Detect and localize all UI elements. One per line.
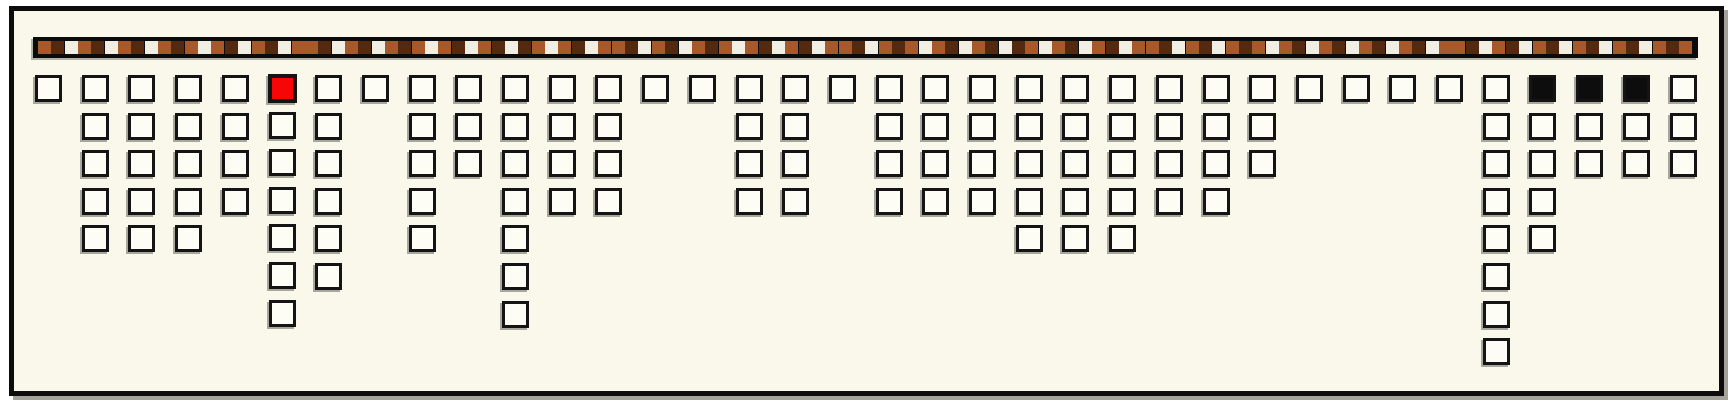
board-cell[interactable]	[502, 188, 529, 215]
board-column-17	[782, 75, 812, 225]
board-cell[interactable]	[1576, 150, 1603, 177]
board-cell[interactable]	[1062, 188, 1089, 215]
board-cell[interactable]	[922, 113, 949, 140]
board-cell[interactable]	[1016, 113, 1043, 140]
board-cell[interactable]	[1203, 113, 1230, 140]
board-cell[interactable]	[736, 113, 763, 140]
board-cell[interactable]	[175, 188, 202, 215]
board-column-20	[922, 75, 952, 225]
board-cell-black[interactable]	[1576, 75, 1603, 102]
board-cell[interactable]	[969, 75, 996, 102]
board-cell[interactable]	[1203, 75, 1230, 102]
board-column-27	[1249, 75, 1279, 188]
board-cell[interactable]	[1016, 75, 1043, 102]
board-cell[interactable]	[829, 75, 856, 102]
board-column-9	[409, 75, 439, 263]
board-cell[interactable]	[455, 113, 482, 140]
board-cell[interactable]	[315, 188, 342, 215]
board-cell[interactable]	[82, 75, 109, 102]
board-cell-red[interactable]	[268, 74, 297, 103]
board-cell[interactable]	[1670, 113, 1697, 140]
board-cell[interactable]	[736, 188, 763, 215]
board-cell[interactable]	[1156, 113, 1183, 140]
board-cell[interactable]	[922, 150, 949, 177]
board-cell[interactable]	[1623, 113, 1650, 140]
board-cell[interactable]	[1156, 150, 1183, 177]
board-cell[interactable]	[595, 113, 622, 140]
board-column-34	[1576, 75, 1606, 188]
board-cell[interactable]	[175, 150, 202, 177]
board-cell[interactable]	[1483, 225, 1510, 252]
board-cell[interactable]	[269, 224, 296, 251]
board-cell[interactable]	[175, 113, 202, 140]
board-cell[interactable]	[969, 113, 996, 140]
board-column-12	[549, 75, 579, 225]
board-cell[interactable]	[922, 188, 949, 215]
board-cell[interactable]	[82, 225, 109, 252]
board-cell[interactable]	[1109, 150, 1136, 177]
board-cell[interactable]	[549, 113, 576, 140]
board-cell[interactable]	[82, 188, 109, 215]
board-cell[interactable]	[876, 113, 903, 140]
board-cell[interactable]	[222, 75, 249, 102]
board-cell[interactable]	[128, 150, 155, 177]
board-cell[interactable]	[1483, 263, 1510, 290]
board-cell[interactable]	[269, 262, 296, 289]
board-cell[interactable]	[269, 112, 296, 139]
board-column-2	[82, 75, 112, 263]
board-cell[interactable]	[1156, 75, 1183, 102]
board-cell[interactable]	[502, 301, 529, 328]
board-cell[interactable]	[969, 150, 996, 177]
board-cell[interactable]	[1062, 75, 1089, 102]
board-column-19	[876, 75, 906, 225]
board-cell[interactable]	[1249, 75, 1276, 102]
board-cell[interactable]	[1343, 75, 1370, 102]
board-column-32	[1483, 75, 1513, 376]
board-cell[interactable]	[1249, 150, 1276, 177]
board-cell[interactable]	[1483, 338, 1510, 365]
board-cell[interactable]	[969, 188, 996, 215]
board-cell[interactable]	[1109, 188, 1136, 215]
board-cell[interactable]	[876, 75, 903, 102]
board-cell[interactable]	[782, 75, 809, 102]
board-column-28	[1296, 75, 1326, 113]
square-column-board	[0, 0, 1733, 408]
board-cell[interactable]	[502, 263, 529, 290]
board-cell[interactable]	[409, 225, 436, 252]
board-column-22	[1016, 75, 1046, 263]
board-cell[interactable]	[1483, 188, 1510, 215]
board-cell-black[interactable]	[1623, 75, 1650, 102]
board-cell[interactable]	[1483, 113, 1510, 140]
board-cell[interactable]	[1576, 113, 1603, 140]
board-cell[interactable]	[82, 113, 109, 140]
board-cell[interactable]	[128, 113, 155, 140]
board-cell[interactable]	[128, 188, 155, 215]
board-cell[interactable]	[502, 113, 529, 140]
board-cell[interactable]	[82, 150, 109, 177]
board-cell[interactable]	[362, 75, 389, 102]
board-cell[interactable]	[315, 225, 342, 252]
board-cell[interactable]	[409, 188, 436, 215]
board-cell[interactable]	[175, 225, 202, 252]
board-column-35	[1623, 75, 1653, 188]
board-cell[interactable]	[595, 188, 622, 215]
board-cell[interactable]	[409, 150, 436, 177]
board-cell[interactable]	[1670, 75, 1697, 102]
board-cell[interactable]	[455, 150, 482, 177]
board-column-8	[362, 75, 392, 113]
board-cell[interactable]	[222, 113, 249, 140]
board-cell[interactable]	[1016, 150, 1043, 177]
board-cell[interactable]	[782, 188, 809, 215]
board-cell[interactable]	[922, 75, 949, 102]
board-cell-black[interactable]	[1529, 75, 1556, 102]
board-column-11	[502, 75, 532, 338]
board-cell[interactable]	[1529, 150, 1556, 177]
panel	[0, 0, 1733, 408]
board-cell[interactable]	[175, 75, 202, 102]
board-column-21	[969, 75, 999, 225]
board-column-25	[1156, 75, 1186, 225]
board-column-31	[1436, 75, 1466, 113]
board-cell[interactable]	[1109, 75, 1136, 102]
board-cell[interactable]	[1389, 75, 1416, 102]
board-cell[interactable]	[595, 150, 622, 177]
board-column-15	[689, 75, 719, 113]
board-cell[interactable]	[549, 150, 576, 177]
board-cell[interactable]	[35, 75, 62, 102]
board-cell[interactable]	[782, 113, 809, 140]
board-cell[interactable]	[736, 150, 763, 177]
board-cell[interactable]	[409, 113, 436, 140]
board-cell[interactable]	[315, 113, 342, 140]
board-cell[interactable]	[642, 75, 669, 102]
board-cell[interactable]	[1529, 188, 1556, 215]
board-cell[interactable]	[315, 75, 342, 102]
board-cell[interactable]	[455, 75, 482, 102]
board-cell[interactable]	[1436, 75, 1463, 102]
board-cell[interactable]	[1203, 188, 1230, 215]
board-cell[interactable]	[502, 150, 529, 177]
board-column-30	[1389, 75, 1419, 113]
board-cell[interactable]	[1529, 225, 1556, 252]
board-column-10	[455, 75, 485, 188]
board-cell[interactable]	[222, 188, 249, 215]
board-column-1	[35, 75, 65, 113]
board-cell[interactable]	[549, 75, 576, 102]
board-column-16	[736, 75, 766, 225]
board-cell[interactable]	[1062, 150, 1089, 177]
board-column-36	[1670, 75, 1700, 188]
board-cell[interactable]	[1109, 225, 1136, 252]
board-column-4	[175, 75, 205, 263]
board-column-23	[1062, 75, 1092, 263]
board-cell[interactable]	[502, 225, 529, 252]
board-cell[interactable]	[1483, 75, 1510, 102]
board-column-26	[1203, 75, 1233, 225]
board-cell[interactable]	[1016, 225, 1043, 252]
board-cell[interactable]	[1156, 188, 1183, 215]
board-column-13	[595, 75, 625, 225]
board-cell[interactable]	[269, 149, 296, 176]
board-column-24	[1109, 75, 1139, 263]
board-cell[interactable]	[1203, 150, 1230, 177]
board-cell[interactable]	[876, 188, 903, 215]
board-column-29	[1343, 75, 1373, 113]
board-cell[interactable]	[222, 150, 249, 177]
board-cell[interactable]	[549, 188, 576, 215]
board-cell[interactable]	[1249, 113, 1276, 140]
board-cell[interactable]	[876, 150, 903, 177]
board-cell[interactable]	[269, 300, 296, 327]
board-cell[interactable]	[595, 75, 622, 102]
board-cell[interactable]	[315, 263, 342, 290]
board-cell[interactable]	[315, 150, 342, 177]
board-cell[interactable]	[689, 75, 716, 102]
board-cell[interactable]	[1296, 75, 1323, 102]
board-column-14	[642, 75, 672, 113]
board-column-7	[315, 75, 345, 301]
board-column-3	[128, 75, 158, 263]
board-column-18	[829, 75, 859, 113]
board-cell[interactable]	[409, 75, 436, 102]
board-cell[interactable]	[502, 75, 529, 102]
board-cell[interactable]	[1670, 150, 1697, 177]
board-cell[interactable]	[128, 225, 155, 252]
board-cell[interactable]	[1483, 150, 1510, 177]
board-cell[interactable]	[1109, 113, 1136, 140]
board-cell[interactable]	[1016, 188, 1043, 215]
board-cell[interactable]	[782, 150, 809, 177]
board-cell[interactable]	[1062, 113, 1089, 140]
board-cell[interactable]	[1623, 150, 1650, 177]
board-cell[interactable]	[1062, 225, 1089, 252]
board-cell[interactable]	[269, 187, 296, 214]
board-column-5	[222, 75, 252, 225]
board-cell[interactable]	[1529, 113, 1556, 140]
board-cell[interactable]	[736, 75, 763, 102]
board-column-33	[1529, 75, 1559, 263]
board-cell[interactable]	[1483, 301, 1510, 328]
board-column-6	[269, 75, 299, 337]
board-cell[interactable]	[128, 75, 155, 102]
